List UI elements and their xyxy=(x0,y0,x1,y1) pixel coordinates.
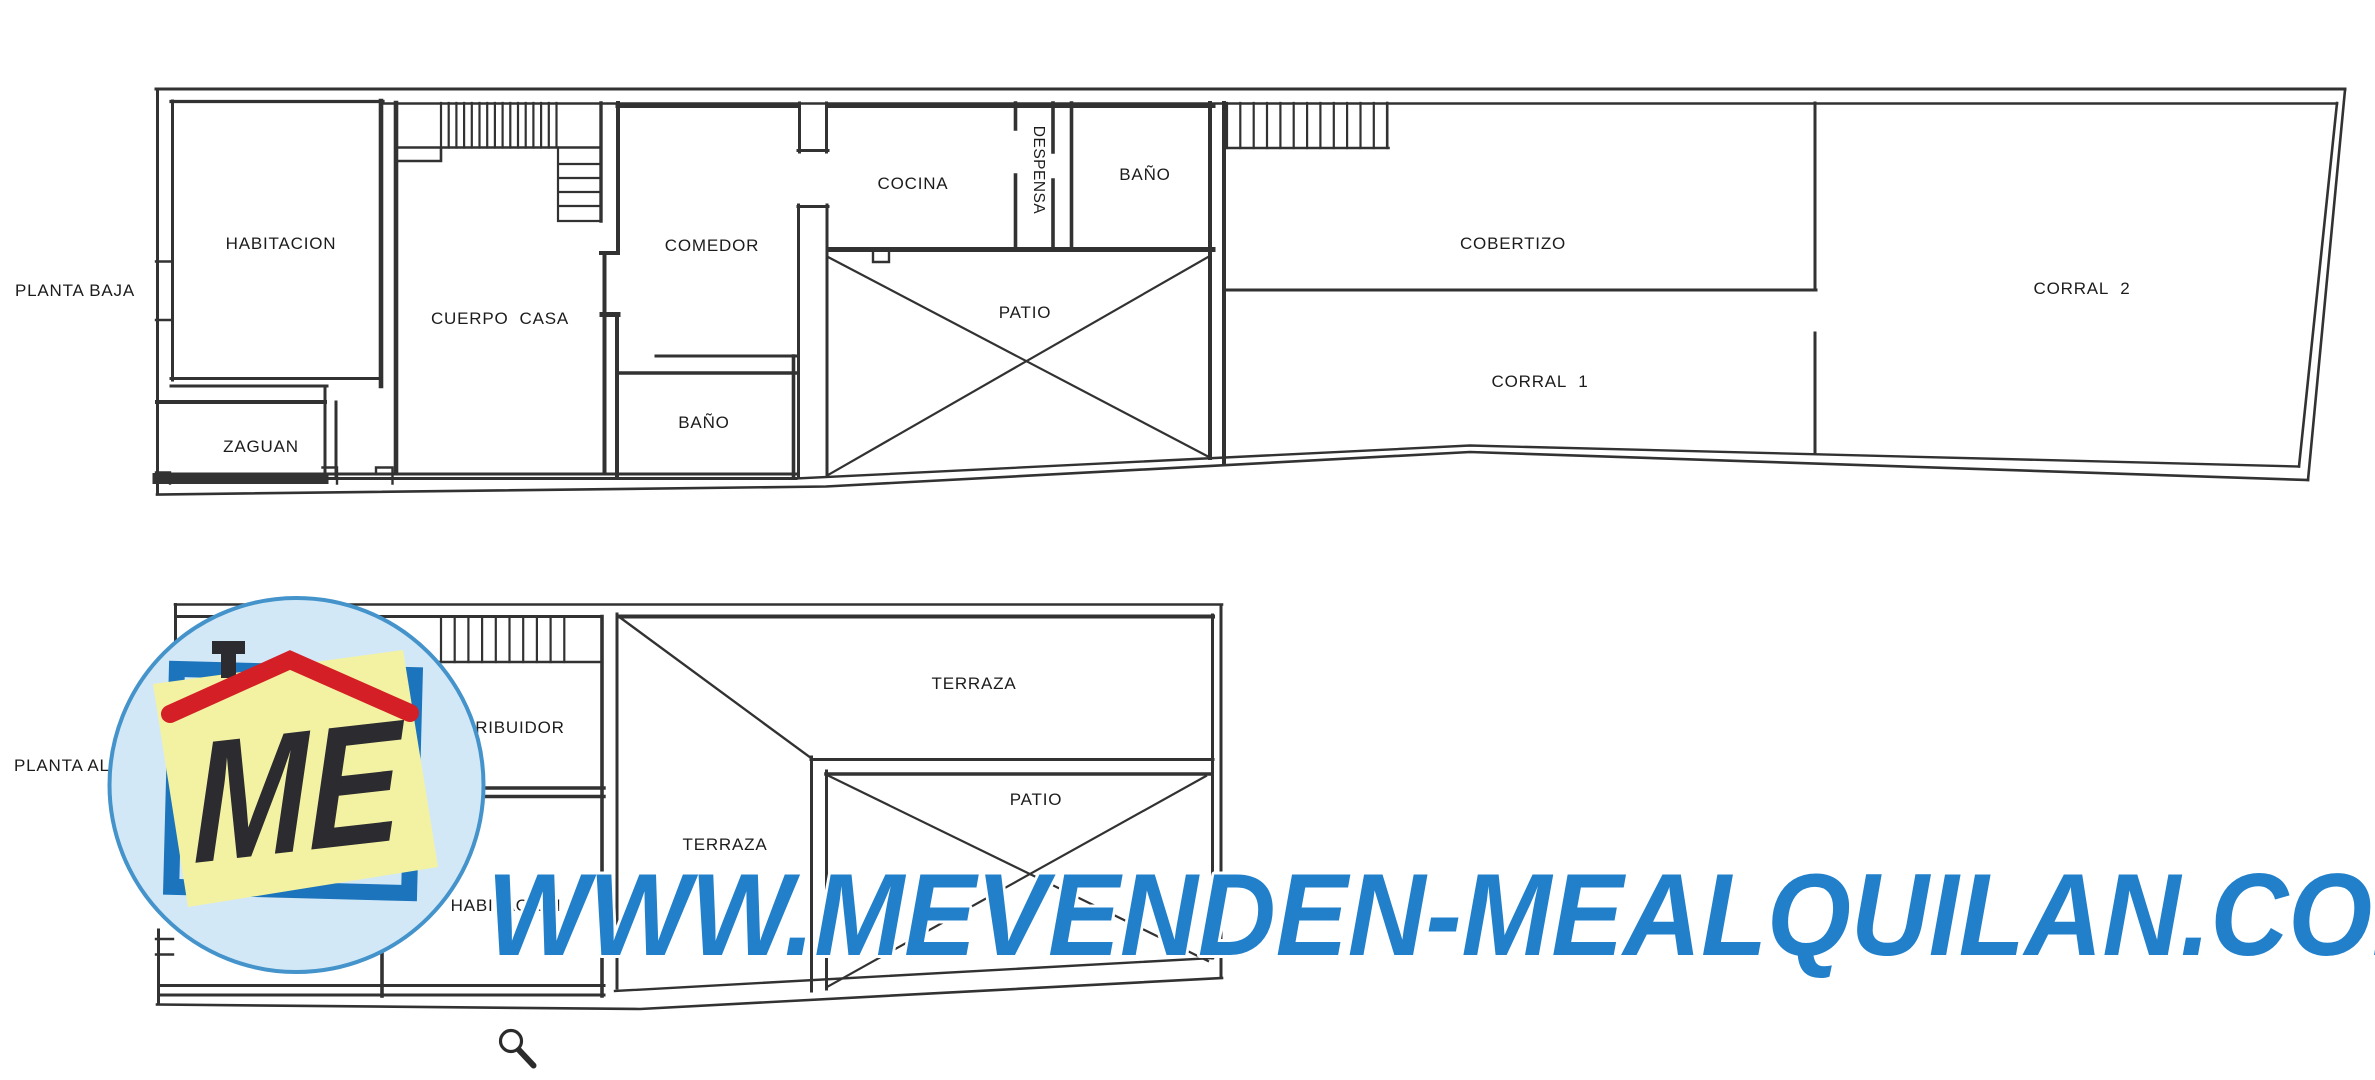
svg-text:CORRAL 2: CORRAL 2 xyxy=(2034,279,2131,298)
svg-text:BAÑO: BAÑO xyxy=(678,413,729,432)
svg-text:CORRAL 1: CORRAL 1 xyxy=(1492,372,1589,391)
svg-text:PLANTA BAJA: PLANTA BAJA xyxy=(15,281,135,300)
svg-text:BAÑO: BAÑO xyxy=(1119,165,1170,184)
svg-text:PLANTA AL: PLANTA AL xyxy=(14,756,110,775)
svg-text:ME: ME xyxy=(192,682,406,900)
svg-text:PATIO: PATIO xyxy=(999,303,1052,322)
svg-text:CUERPO CASA: CUERPO CASA xyxy=(431,309,569,328)
svg-text:PATIO: PATIO xyxy=(1010,790,1063,809)
svg-text:COBERTIZO: COBERTIZO xyxy=(1460,234,1566,253)
svg-text:WWW.MEVENDEN-MEALQUILAN.COM: WWW.MEVENDEN-MEALQUILAN.COM xyxy=(487,849,2375,980)
svg-text:COCINA: COCINA xyxy=(878,174,949,193)
svg-text:HABITACION: HABITACION xyxy=(226,234,337,253)
svg-text:COMEDOR: COMEDOR xyxy=(665,236,759,255)
svg-text:DESPENSA: DESPENSA xyxy=(1030,126,1047,215)
svg-text:TERRAZA: TERRAZA xyxy=(932,674,1017,693)
svg-text:ZAGUAN: ZAGUAN xyxy=(223,437,299,456)
